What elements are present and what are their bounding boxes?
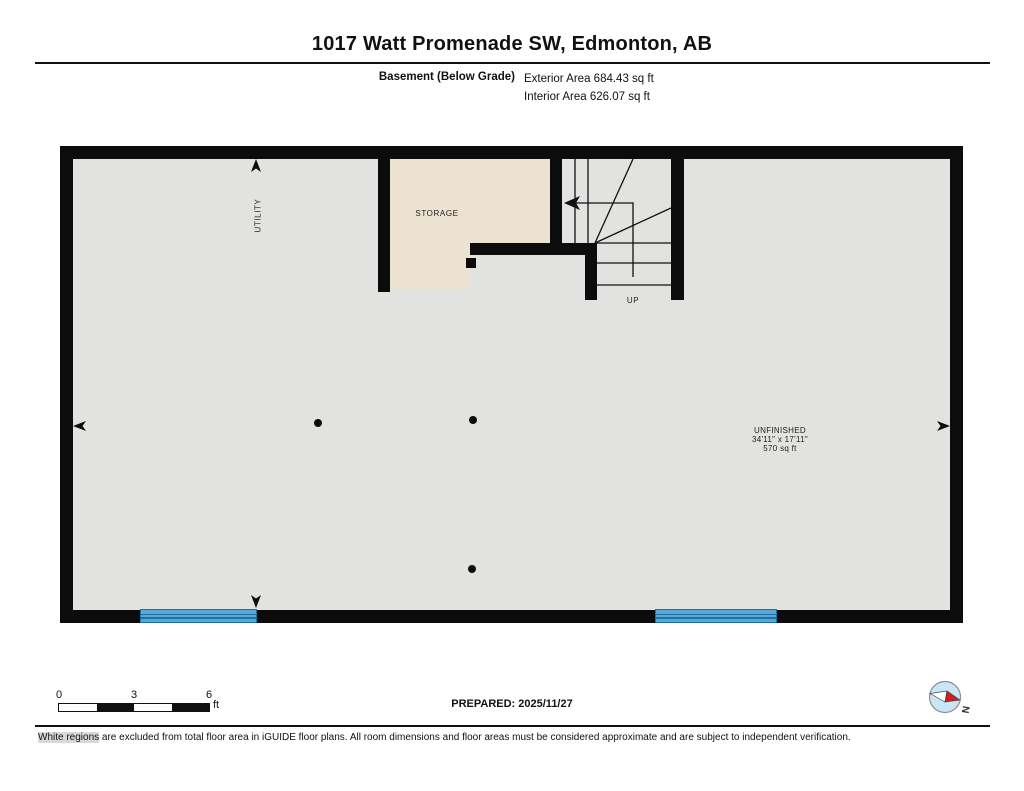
support-column [468, 565, 476, 573]
storage-left-wall [378, 159, 390, 292]
window-pane-line [656, 614, 776, 616]
arrow-marker-bottom-icon [251, 595, 261, 608]
window [655, 609, 777, 623]
window-pane-line [141, 614, 256, 616]
storage-region-lower [388, 243, 470, 290]
room-label-unfinished: UNFINISHED 34'11" x 17'11" 570 sq ft [690, 426, 870, 453]
door-stub [466, 258, 476, 268]
disclaimer-lead: White regions [38, 732, 99, 743]
compass-north-label: N [959, 705, 971, 714]
room-label-utility: UTILITY [254, 196, 263, 236]
window-pane-line [141, 617, 256, 619]
window-pane-line [656, 617, 776, 619]
disclaimer-rest: are excluded from total floor area in iG… [99, 732, 851, 743]
staircase-icon [550, 159, 684, 309]
arrow-marker-top-icon [251, 159, 261, 172]
header-divider [35, 62, 990, 64]
window [140, 609, 257, 623]
prepared-date-label: PREPARED: 2025/11/27 [0, 698, 1024, 710]
floor-plan: UTILITY STORAGE UP UNFINISHED 34'11" x 1… [60, 146, 963, 623]
stairs-up-label: UP [603, 296, 663, 305]
interior-area-label: Interior Area 626.07 sq ft [524, 91, 650, 103]
floor-name-label: Basement (Below Grade) [0, 71, 515, 83]
support-column [469, 416, 477, 424]
floor-area-summary: Exterior Area 684.43 sq ftInterior Area … [524, 71, 654, 106]
arrow-marker-left-icon [73, 421, 86, 431]
room-label-storage: STORAGE [357, 209, 517, 218]
exterior-area-label: Exterior Area 684.43 sq ft [524, 73, 654, 85]
unfinished-area: 570 sq ft [763, 444, 796, 453]
disclaimer-text: White regions are excluded from total fl… [38, 732, 998, 743]
unfinished-dimensions: 34'11" x 17'11" [752, 435, 808, 444]
page-title: 1017 Watt Promenade SW, Edmonton, AB [0, 33, 1024, 56]
support-column [314, 419, 322, 427]
compass-icon: N [926, 678, 978, 722]
unfinished-name: UNFINISHED [754, 426, 806, 435]
storage-region [388, 159, 552, 243]
arrow-marker-right-icon [937, 421, 950, 431]
footer-divider [35, 725, 990, 727]
